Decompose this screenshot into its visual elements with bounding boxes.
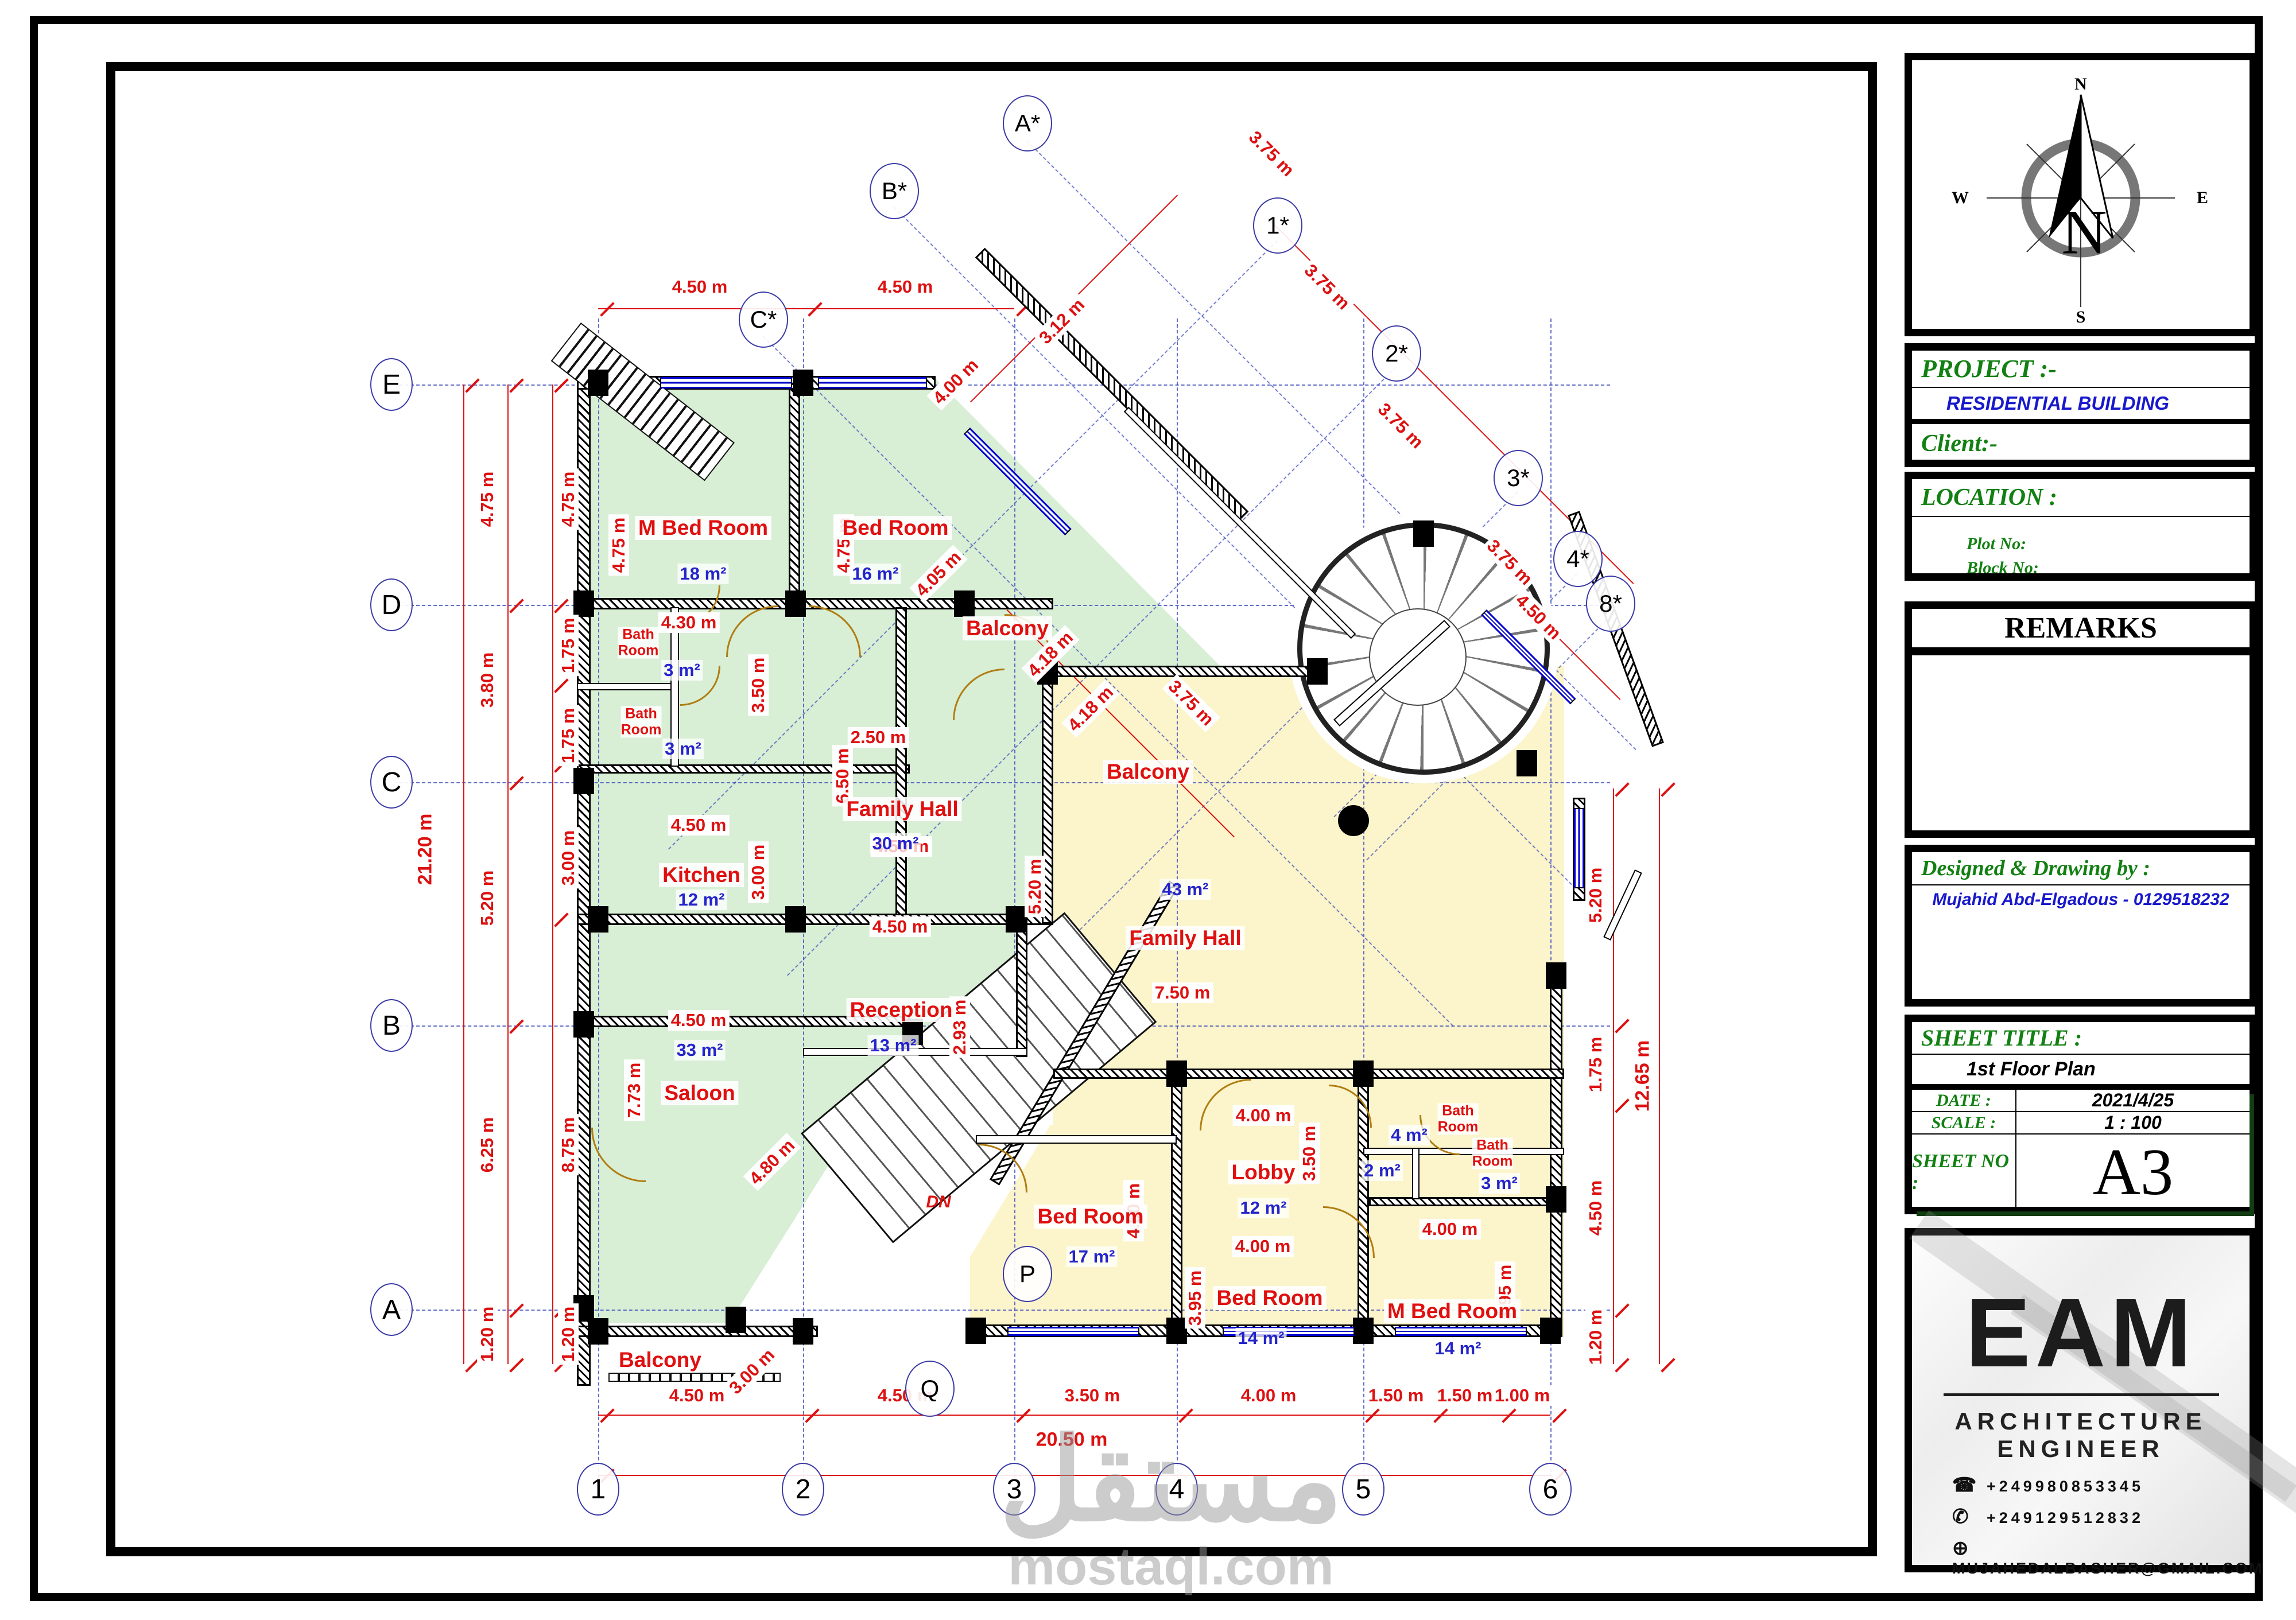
plan-area: 30 m² <box>870 833 921 854</box>
label-bath-2: BathRoom <box>621 706 662 738</box>
wall-kitchen-right <box>895 607 907 920</box>
plan-col <box>1006 906 1026 933</box>
north-compass-icon: N S W E N <box>1912 60 2250 329</box>
plan-dimv: 3.80 m <box>477 650 498 711</box>
compass-e: E <box>2197 188 2208 208</box>
dim-line-left-outer <box>463 384 464 1364</box>
grid-bubble-1star: 1* <box>1253 197 1302 254</box>
wall-bottom-left <box>577 1326 818 1337</box>
grid-bubble-A: A <box>370 1283 413 1336</box>
plan-area: 12 m² <box>1238 1198 1289 1218</box>
plan-col <box>954 590 975 617</box>
plan-col <box>1517 750 1537 776</box>
label-mbedroom: M Bed Room <box>635 516 771 540</box>
block-no-label: Block No: <box>1912 556 2250 580</box>
wall-bedroom-divider <box>789 388 800 600</box>
plan-dimv: 4.75 m <box>477 469 498 530</box>
firm-whatsapp: +249129512832 <box>1987 1509 2144 1526</box>
wall-left <box>577 376 591 1386</box>
grid-bubble-C: C <box>370 756 413 809</box>
plan-area: 14 m² <box>1236 1328 1287 1349</box>
plan-area: 33 m² <box>674 1040 726 1060</box>
location-box: LOCATION : Plot No: Block No: <box>1905 472 2257 581</box>
label-mbedroom-14: M Bed Room <box>1384 1299 1521 1323</box>
plan-dimv: 8.75 m <box>558 1114 579 1176</box>
plan-col <box>588 906 608 933</box>
window-right <box>1574 808 1584 888</box>
designed-by-value: Mujahid Abd-Elgadous - 0129518232 <box>1912 885 2250 961</box>
plan-dimv: 1.75 m <box>1585 1034 1606 1095</box>
project-label: PROJECT :- <box>1912 351 2250 388</box>
drawing-sheet: M Bed Room18 m²Bed Room16 m²BalconyBalco… <box>0 0 2296 1620</box>
label-family-hall-1: Family Hall <box>843 797 961 821</box>
wall-lobby-left <box>1171 1079 1182 1337</box>
column-dot <box>1338 805 1369 836</box>
dim-line-right-outer <box>1659 788 1660 1364</box>
remarks-label: REMARKS <box>1912 609 2250 655</box>
sheet-title-label: SHEET TITLE : <box>1912 1022 2250 1055</box>
project-box: PROJECT :- RESIDENTIAL BUILDING Client:- <box>1905 343 2257 467</box>
plan-area: 18 m² <box>678 564 729 584</box>
plan-col <box>793 1318 813 1345</box>
plan-dimv: 3.00 m <box>748 842 769 903</box>
plan-dimv: 5.20 m <box>1025 856 1045 918</box>
date-value: 2021/4/25 <box>2016 1090 2250 1112</box>
plan-col <box>1540 1318 1561 1344</box>
plan-dimbv: 12.65 m <box>1632 1038 1654 1115</box>
dim-line-bottom-1 <box>598 1415 1550 1416</box>
plan-dimb: 20.50 m <box>1033 1429 1111 1451</box>
grid-bubble-B: B <box>370 999 413 1052</box>
plan-dimv: 3.50 m <box>748 655 769 716</box>
label-bath-1: BathRoom <box>618 627 659 659</box>
location-label: LOCATION : <box>1912 479 2250 517</box>
window-top-1 <box>660 377 792 389</box>
globe-icon: ⊕ <box>1952 1537 1987 1560</box>
scale-value: 1 : 100 <box>2016 1112 2250 1135</box>
wall-wc-div <box>1412 1148 1420 1199</box>
wall-kitchen-bottom <box>577 914 1053 925</box>
window-top-2 <box>818 377 927 389</box>
plan-col <box>785 590 806 617</box>
plan-dimv: 5.20 m <box>1585 865 1606 926</box>
gridline-2 <box>803 318 804 1478</box>
grid-bubble-6: 6 <box>1529 1463 1572 1516</box>
label-reception: Reception <box>847 998 956 1022</box>
label-family-hall-2: Family Hall <box>1126 926 1244 950</box>
wall-bath-right-div1 <box>1363 1148 1564 1155</box>
plan-dimv: 3.50 m <box>1299 1123 1320 1184</box>
plan-dimv: 4.75 m <box>608 515 629 576</box>
plan-area: 3 m² <box>1479 1173 1520 1194</box>
plan-dim: 4.00 m <box>1233 1105 1294 1126</box>
plan-dim: 4.30 m <box>658 612 720 633</box>
label-balcony-3: Balcony <box>615 1348 705 1372</box>
sheet-title-value: 1st Floor Plan <box>1912 1055 2250 1090</box>
sheet-title-box: SHEET TITLE : 1st Floor Plan DATE : 2021… <box>1905 1015 2257 1214</box>
firm-whatsapp-row: ✆+249129512832 <box>1952 1505 2144 1528</box>
window-bed17 <box>1007 1327 1139 1336</box>
window-mbed <box>1395 1327 1527 1336</box>
grid-bubble-Astar: A* <box>1003 95 1052 151</box>
plan-dim: 4.50 m <box>668 815 730 836</box>
plan-col <box>1546 962 1566 989</box>
firm-phone: +249980853345 <box>1987 1478 2144 1495</box>
firm-phone-row: ☎+249980853345 <box>1952 1474 2144 1497</box>
label-balcony-2: Balcony <box>1103 760 1193 784</box>
grid-bubble-3star: 3* <box>1494 450 1543 506</box>
designed-by-label: Designed & Drawing by : <box>1912 852 2250 885</box>
firm-email: MUJAHEDALBASHER@GMAIL.COM <box>1952 1560 2263 1577</box>
grid-bubble-2: 2 <box>782 1463 824 1516</box>
dim-line-bottom-2 <box>598 1475 1550 1476</box>
plan-area: 14 m² <box>1433 1338 1484 1359</box>
grid-bubble-Bstar: B* <box>870 163 919 219</box>
scale-label: SCALE : <box>1912 1112 2016 1135</box>
grid-bubble-D: D <box>370 578 413 631</box>
label-saloon: Saloon <box>661 1081 738 1105</box>
label-bath-3: BathRoom <box>1472 1138 1513 1170</box>
plan-area: 12 m² <box>676 889 727 910</box>
wall-balcony-bottom <box>1053 666 1323 677</box>
plan-dim: 4.50 m <box>666 1385 728 1406</box>
label-lobby: Lobby <box>1228 1160 1299 1184</box>
plan-dim: 1.50 m <box>1434 1385 1496 1406</box>
spiral-stair-core <box>1369 608 1467 706</box>
plan-dimv: 4.75 m <box>558 469 579 530</box>
plan-col <box>793 370 813 396</box>
label-bedroom-17: Bed Room <box>1034 1205 1147 1229</box>
dim-line-left-inner <box>552 384 553 1364</box>
firm-tagline: ARCHITECTURE ENGINEER <box>1912 1408 2250 1463</box>
plan-dim: 4.50 m <box>870 916 931 937</box>
plan-dim: 4.00 m <box>1238 1385 1300 1406</box>
client-label: Client:- <box>1912 421 2250 477</box>
plan-col <box>1546 1186 1566 1213</box>
wall-bath-divider <box>577 683 677 690</box>
date-label: DATE : <box>1912 1090 2016 1112</box>
wall-reception-right <box>1016 914 1027 1057</box>
firm-logo-box: EAM ARCHITECTURE ENGINEER ☎+249980853345… <box>1905 1228 2257 1572</box>
grid-bubble-P: P <box>1003 1246 1052 1302</box>
plot-no-label: Plot No: <box>1912 517 2250 556</box>
plan-dimv: 3.95 m <box>1185 1268 1205 1329</box>
grid-bubble-3: 3 <box>993 1463 1035 1516</box>
plan-col <box>573 1011 594 1038</box>
plan-col <box>726 1307 746 1333</box>
gridline-1 <box>598 318 599 1478</box>
plan-dim: 4.00 m <box>1232 1236 1294 1257</box>
plan-dim: 4.50 m <box>668 1010 730 1031</box>
label-bath-4: BathRoom <box>1438 1104 1479 1135</box>
phone-icon: ☎ <box>1952 1474 1987 1497</box>
plan-col <box>588 370 608 396</box>
plan-area: 4 m² <box>1389 1125 1430 1145</box>
wall-bedrooms-top <box>1053 1069 1564 1079</box>
plan-col <box>1307 658 1328 685</box>
plan-col <box>1166 1318 1187 1344</box>
plan-col <box>573 590 594 617</box>
plan-dimv: 1.20 m <box>558 1304 579 1365</box>
grid-bubble-4: 4 <box>1155 1463 1198 1516</box>
project-value: RESIDENTIAL BUILDING <box>1912 388 2250 421</box>
plan-col <box>573 768 594 794</box>
label-kitchen: Kitchen <box>659 863 744 887</box>
wall-bed17-top <box>976 1135 1177 1144</box>
dim-line-right-inner <box>1613 788 1614 1364</box>
plan-col <box>1166 1060 1187 1087</box>
plan-area: 3 m² <box>662 739 704 759</box>
plan-col <box>588 1318 608 1345</box>
grid-bubble-1: 1 <box>577 1463 619 1516</box>
grid-bubble-Cstar: C* <box>739 292 788 348</box>
firm-underline <box>1944 1393 2219 1396</box>
plan-dim: 1.00 m <box>1492 1385 1553 1406</box>
firm-logo: EAM <box>1912 1284 2250 1382</box>
wall-mbed-top <box>1369 1197 1564 1206</box>
compass-big-n: N <box>2061 196 2107 269</box>
plan-dim: 2.50 m <box>848 727 909 748</box>
plan-dimv: 1.75 m <box>558 705 579 767</box>
plan-area: 13 m² <box>868 1035 919 1056</box>
grid-bubble-5: 5 <box>1342 1463 1384 1516</box>
plan-area: 43 m² <box>1160 879 1211 900</box>
plan-col <box>1413 520 1434 547</box>
plan-dimbv: 21.20 m <box>414 811 437 888</box>
plan-col <box>1353 1060 1374 1087</box>
label-balcony-1: Balcony <box>963 616 1052 640</box>
designed-box: Designed & Drawing by : Mujahid Abd-Elga… <box>1905 845 2257 1007</box>
plan-dim: 4.50 m <box>875 277 936 297</box>
plan-dimv: 6.25 m <box>477 1114 498 1176</box>
plan-dimv: 7.73 m <box>624 1060 645 1121</box>
plan-col <box>785 906 806 933</box>
label-dn: DN <box>926 1192 951 1212</box>
compass-w: W <box>1952 188 1969 208</box>
plan-dimv: 5.20 m <box>477 868 498 929</box>
sheet-info-table: DATE : 2021/4/25 SCALE : 1 : 100 SHEET N… <box>1912 1090 2250 1211</box>
sheet-no-value: A3 <box>2016 1135 2250 1211</box>
label-bedroom: Bed Room <box>839 516 952 540</box>
plan-dim: 1.50 m <box>1366 1385 1427 1406</box>
label-bedroom-14: Bed Room <box>1213 1286 1327 1310</box>
firm-email-row: ⊕MUJAHEDALBASHER@GMAIL.COM <box>1952 1537 2263 1578</box>
plan-dim: 3.50 m <box>1062 1385 1123 1406</box>
plan-dim: 7.50 m <box>1152 982 1213 1003</box>
plan-area: 16 m² <box>850 564 901 584</box>
dim-line-top <box>598 308 1014 309</box>
grid-bubble-Q: Q <box>905 1361 955 1417</box>
remarks-box: REMARKS <box>1905 601 2257 838</box>
compass-box: N S W E N <box>1905 53 2257 336</box>
grid-bubble-4star: 4* <box>1553 531 1603 587</box>
whatsapp-icon: ✆ <box>1952 1505 1987 1528</box>
plan-dim: 4.00 m <box>1420 1219 1481 1240</box>
plan-area: 17 m² <box>1066 1246 1118 1267</box>
plan-dimv: 1.75 m <box>558 615 579 677</box>
compass-n: N <box>2074 75 2087 94</box>
compass-s: S <box>2076 308 2086 327</box>
plan-area: 3 m² <box>661 660 703 681</box>
plan-col <box>1353 1318 1374 1344</box>
plan-dimv: 3.00 m <box>558 828 579 889</box>
plan-dimv: 1.20 m <box>1585 1307 1606 1368</box>
grid-bubble-2star: 2* <box>1372 325 1421 382</box>
plan-col <box>965 1318 986 1344</box>
plan-dimv: 1.20 m <box>477 1304 498 1365</box>
grid-bubble-8star: 8* <box>1586 576 1635 632</box>
plan-dim: 4.50 m <box>669 277 731 297</box>
plan-dimv: 4.50 m <box>1585 1178 1606 1239</box>
sheet-no-label: SHEET NO : <box>1912 1135 2016 1211</box>
grid-bubble-E: E <box>370 358 413 411</box>
dim-line-left-mid <box>507 384 509 1364</box>
gridline-3 <box>1014 318 1015 1478</box>
wall-bath-bottom <box>577 764 910 774</box>
plan-area: 2 m² <box>1362 1160 1403 1181</box>
